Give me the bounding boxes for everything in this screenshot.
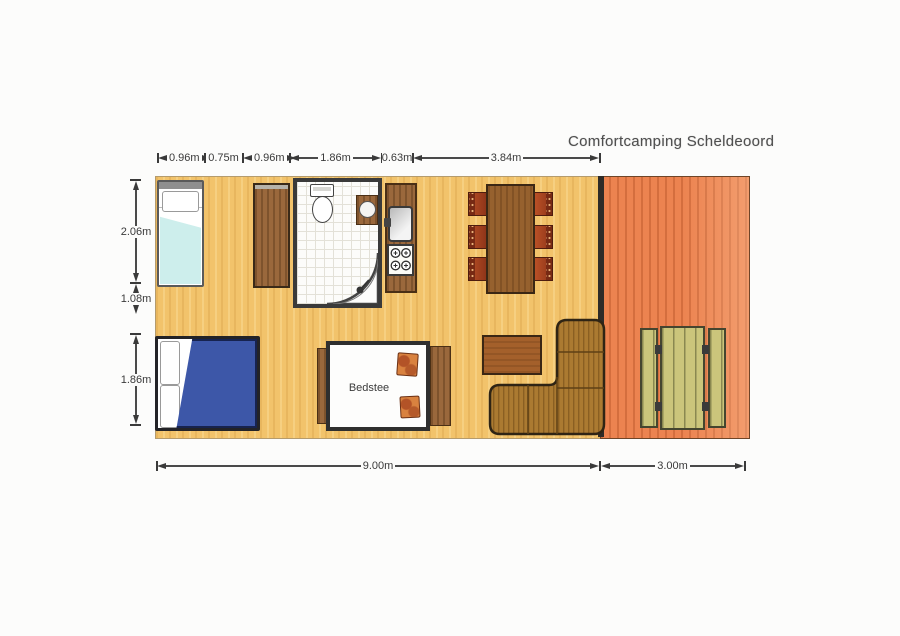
- single-bed-pillow: [162, 191, 199, 212]
- dining-chair: [468, 192, 487, 216]
- chair-back: [469, 193, 475, 215]
- wardrobe-top-edge: [255, 185, 288, 189]
- arrow-left-icon: [290, 155, 299, 161]
- bedstee-cushion: [399, 395, 420, 418]
- dining-chair: [468, 225, 487, 249]
- arrow-up-icon: [133, 335, 139, 344]
- arrow-down-icon: [133, 415, 139, 424]
- dim-left-single-bed: 2.06m: [119, 181, 153, 282]
- dining-chair: [534, 225, 553, 249]
- picnic-bench-left: [640, 328, 658, 428]
- faucet: [384, 218, 391, 227]
- floorplan-canvas: Comfortcamping Scheldeoord 0.96m 0.75m 0…: [0, 0, 900, 636]
- chair-back: [546, 193, 552, 215]
- arrow-left-icon: [158, 155, 167, 161]
- arrow-left-icon: [157, 463, 166, 469]
- corner-sofa: [488, 318, 606, 436]
- dim-top-kitchen: 0.63m: [382, 152, 412, 164]
- bedstee: Bedstee: [326, 341, 430, 431]
- dim-tick: [744, 461, 746, 471]
- picnic-connector: [655, 345, 662, 354]
- dim-bottom-terrace: 3.00m: [601, 460, 744, 472]
- arrow-down-icon: [133, 305, 139, 314]
- chair-back: [546, 258, 552, 280]
- single-bed-headboard: [159, 182, 202, 189]
- picnic-connector: [702, 402, 709, 411]
- dining-chair: [468, 257, 487, 281]
- arrow-right-icon: [735, 463, 744, 469]
- double-bed-duvet: [174, 339, 257, 428]
- arrow-right-icon: [372, 155, 381, 161]
- dim-top-wardrobe: 0.96m: [243, 152, 289, 164]
- picnic-connector: [702, 345, 709, 354]
- shower: [297, 182, 378, 304]
- dining-chair: [534, 192, 553, 216]
- wardrobe: [253, 183, 290, 288]
- picnic-connector: [655, 402, 662, 411]
- bedstee-label: Bedstee: [334, 382, 404, 394]
- double-bed: [155, 336, 260, 431]
- arrow-up-icon: [133, 284, 139, 293]
- kitchen-counter: [385, 183, 417, 293]
- dim-top-gap: 0.75m: [205, 152, 242, 164]
- arrow-right-icon: [590, 463, 599, 469]
- chair-back: [469, 226, 475, 248]
- dim-left-gap: 1.08m: [119, 284, 153, 333]
- plan-title: Comfortcamping Scheldeoord: [568, 133, 774, 150]
- dining-chair: [534, 257, 553, 281]
- bedstee-cushion: [396, 352, 419, 376]
- dim-top-bed-width: 0.96m: [158, 152, 204, 164]
- picnic-table-top: [660, 326, 705, 430]
- single-bed: [157, 180, 204, 287]
- picnic-bench-right: [708, 328, 726, 428]
- dim-bottom-lodge: 9.00m: [157, 460, 599, 472]
- chair-back: [469, 258, 475, 280]
- arrow-left-icon: [413, 155, 422, 161]
- arrow-down-icon: [133, 273, 139, 282]
- bedstee-right-panel: [430, 346, 451, 426]
- dim-tick: [130, 424, 141, 426]
- stove: [387, 244, 414, 276]
- stove-burners-icon: [389, 246, 412, 274]
- dining-table: [486, 184, 535, 294]
- dim-top-bathroom: 1.86m: [290, 152, 381, 164]
- double-bed-pillow: [160, 341, 180, 385]
- dim-top-living: 3.84m: [413, 152, 599, 164]
- dim-left-double-bed: 1.86m: [119, 335, 153, 424]
- chair-back: [546, 226, 552, 248]
- arrow-left-icon: [243, 155, 252, 161]
- arrow-right-icon: [590, 155, 599, 161]
- kitchen-sink: [388, 206, 413, 242]
- bathroom: [293, 178, 382, 308]
- dim-tick: [599, 153, 601, 163]
- arrow-up-icon: [133, 181, 139, 190]
- arrow-left-icon: [601, 463, 610, 469]
- double-bed-pillow: [160, 385, 180, 428]
